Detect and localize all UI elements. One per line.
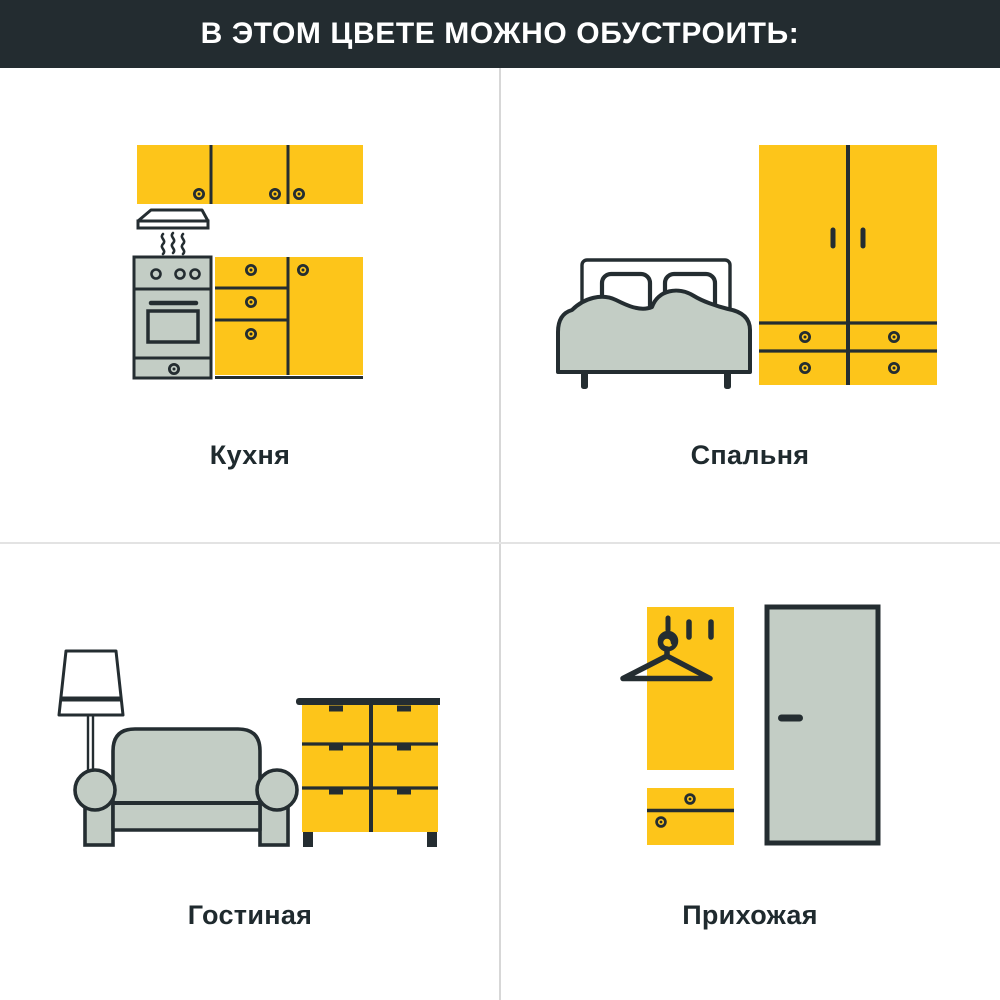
sofa-back	[113, 729, 260, 830]
door	[767, 607, 878, 843]
shoe-cabinet	[647, 788, 734, 845]
door-handle	[778, 715, 803, 722]
quadrant-living-room: Гостиная	[0, 543, 500, 1000]
drawer-handle	[397, 706, 411, 712]
label-bedroom: Спальня	[500, 437, 1000, 473]
living-room-icon	[40, 620, 440, 880]
coat-rack	[623, 607, 734, 770]
range-hood	[138, 210, 208, 254]
drawer-handle	[329, 745, 343, 751]
wardrobe	[759, 145, 937, 385]
kitchen-icon	[125, 140, 375, 390]
steam-lines	[162, 233, 184, 254]
bedroom-icon	[550, 140, 950, 400]
quadrant-kitchen: Кухня	[0, 68, 500, 543]
label-kitchen: Кухня	[0, 437, 500, 473]
header-banner: В ЭТОМ ЦВЕТЕ МОЖНО ОБУСТРОИТЬ:	[0, 0, 1000, 68]
chest-foot	[427, 832, 437, 847]
sofa	[75, 729, 297, 845]
chest-foot	[303, 832, 313, 847]
base-cabinets	[215, 257, 363, 378]
hallway-icon	[590, 595, 890, 855]
wall-cabinets	[137, 145, 363, 204]
label-living-room: Гостиная	[0, 897, 500, 933]
drawer-chest	[296, 698, 440, 847]
quadrant-bedroom: Спальня	[500, 68, 1000, 543]
lamp-shade	[59, 651, 123, 715]
drawer-handle	[329, 706, 343, 712]
stove	[134, 257, 211, 378]
drawer-handle	[397, 745, 411, 751]
sofa-armrest	[75, 770, 115, 810]
drawer-handle	[329, 789, 343, 795]
sofa-armrest	[257, 770, 297, 810]
drawer-handle	[397, 789, 411, 795]
quadrant-hallway: Прихожая	[500, 543, 1000, 1000]
header-title: В ЭТОМ ЦВЕТЕ МОЖНО ОБУСТРОИТЬ:	[201, 17, 800, 51]
label-hallway: Прихожая	[500, 897, 1000, 933]
infographic: В ЭТОМ ЦВЕТЕ МОЖНО ОБУСТРОИТЬ:	[0, 0, 1000, 1000]
bed	[558, 260, 750, 389]
chest-top	[296, 698, 440, 705]
